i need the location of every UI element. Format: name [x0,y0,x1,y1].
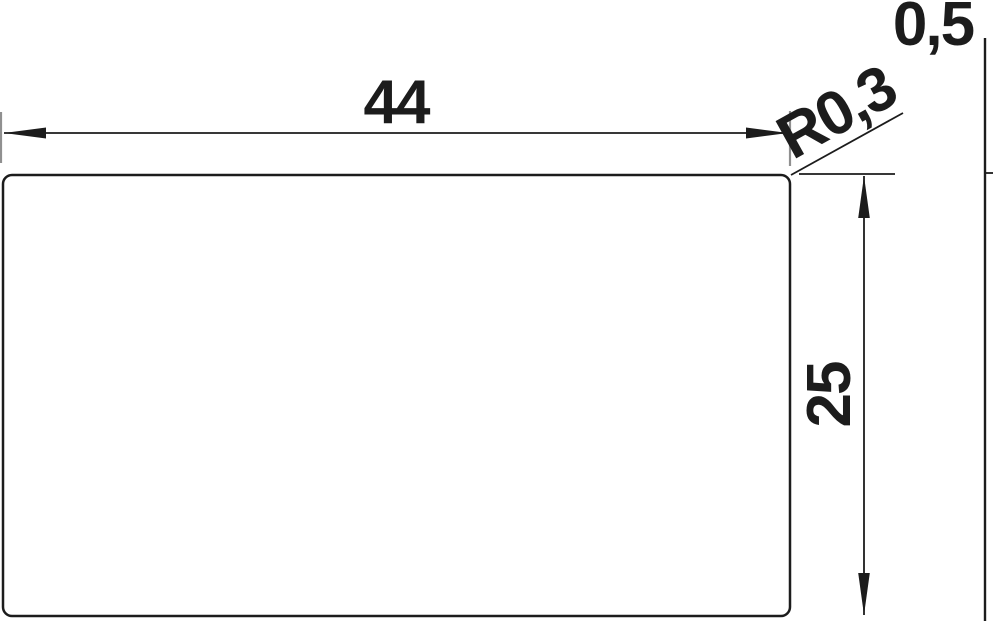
width-dimension-label: 44 [316,72,476,134]
thickness-label: 0,5 [853,0,993,56]
width-arrowhead-left [4,128,46,139]
height-dimension-label: 25 [799,315,861,475]
height-arrowhead-top [858,176,870,218]
drawing-canvas: 44 25 R0,3 0,5 [0,0,993,621]
part-outline [3,175,790,616]
height-arrowhead-bottom [858,573,870,615]
